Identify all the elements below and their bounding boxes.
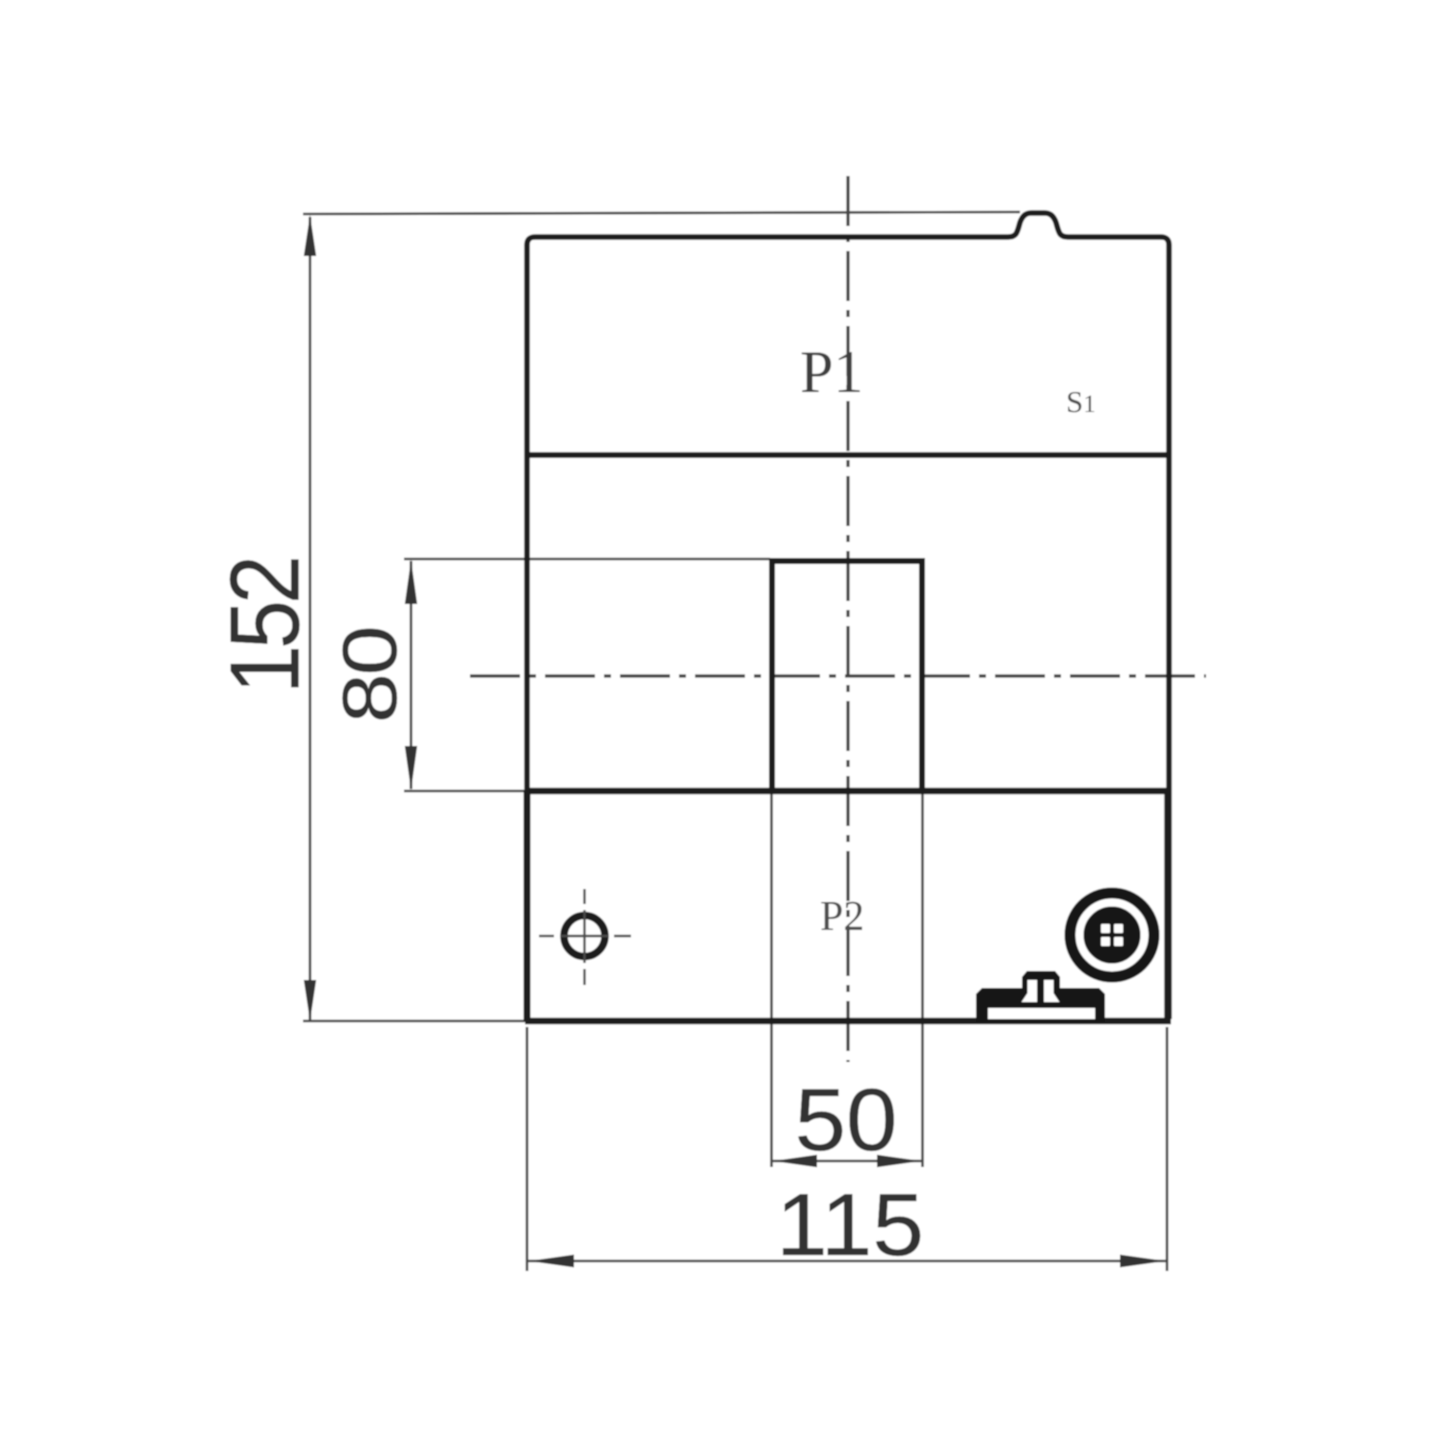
svg-text:80: 80 xyxy=(327,628,413,724)
svg-text:115: 115 xyxy=(776,1176,924,1274)
svg-text:152: 152 xyxy=(210,559,319,694)
svg-text:P2: P2 xyxy=(820,894,864,940)
svg-text:P1: P1 xyxy=(800,339,863,405)
svg-text:50: 50 xyxy=(795,1071,898,1170)
